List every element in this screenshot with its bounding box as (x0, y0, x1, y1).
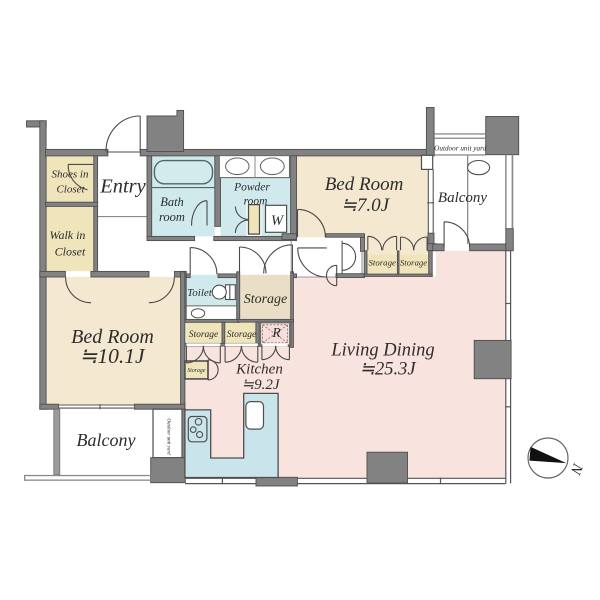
svg-text:Walk in: Walk in (50, 228, 86, 242)
svg-text:Outdoor unit yard: Outdoor unit yard (166, 418, 171, 455)
svg-text:Balcony: Balcony (77, 430, 136, 450)
svg-text:Bath: Bath (160, 195, 184, 209)
svg-text:≒7.0J: ≒7.0J (341, 195, 391, 216)
svg-text:W: W (271, 213, 285, 229)
svg-text:Outdoor unit yard: Outdoor unit yard (434, 144, 486, 152)
svg-text:Storage: Storage (189, 330, 219, 340)
svg-text:≒25.3J: ≒25.3J (359, 360, 416, 380)
svg-text:≒10.1J: ≒10.1J (79, 344, 146, 368)
svg-text:R: R (271, 325, 281, 340)
svg-text:Closet: Closet (55, 245, 86, 259)
svg-text:Living Dining: Living Dining (330, 341, 434, 361)
svg-text:room: room (244, 196, 268, 208)
svg-text:Shoes in: Shoes in (52, 169, 89, 181)
svg-text:Storage: Storage (400, 258, 427, 268)
svg-text:Toilet: Toilet (187, 287, 213, 299)
svg-text:Balcony: Balcony (438, 190, 487, 206)
svg-text:Entry: Entry (99, 175, 146, 197)
svg-text:Storage: Storage (244, 292, 288, 307)
svg-text:Storage: Storage (369, 258, 396, 268)
svg-text:Storage: Storage (187, 368, 205, 374)
svg-text:room: room (159, 210, 185, 224)
svg-text:Bed Room: Bed Room (325, 174, 404, 195)
svg-text:Kitchen: Kitchen (235, 362, 283, 378)
svg-text:Closet: Closet (56, 184, 85, 196)
svg-text:Storage: Storage (227, 330, 257, 340)
svg-text:Powder: Powder (233, 182, 270, 194)
svg-text:≒9.2J: ≒9.2J (242, 377, 281, 393)
